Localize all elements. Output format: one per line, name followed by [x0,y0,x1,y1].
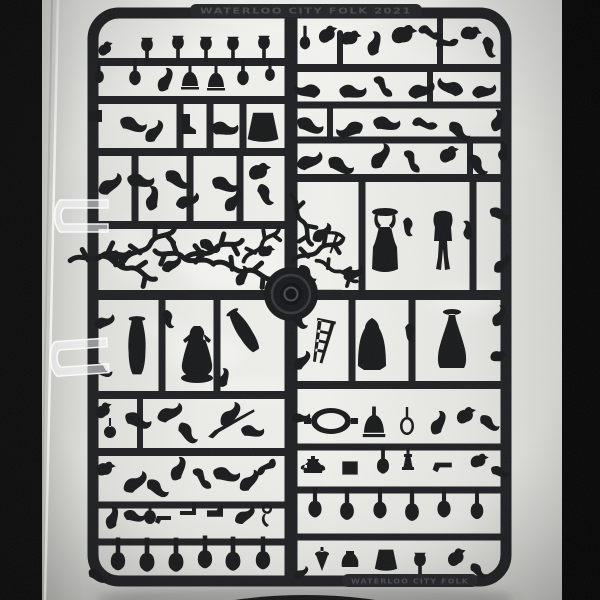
photo-grain [0,0,600,600]
photo-canvas: WATERLOO CITY FOLK 2021 WATERLOO CITY FO… [0,0,600,600]
sprue-photo: WATERLOO CITY FOLK 2021 WATERLOO CITY FO… [0,0,600,600]
